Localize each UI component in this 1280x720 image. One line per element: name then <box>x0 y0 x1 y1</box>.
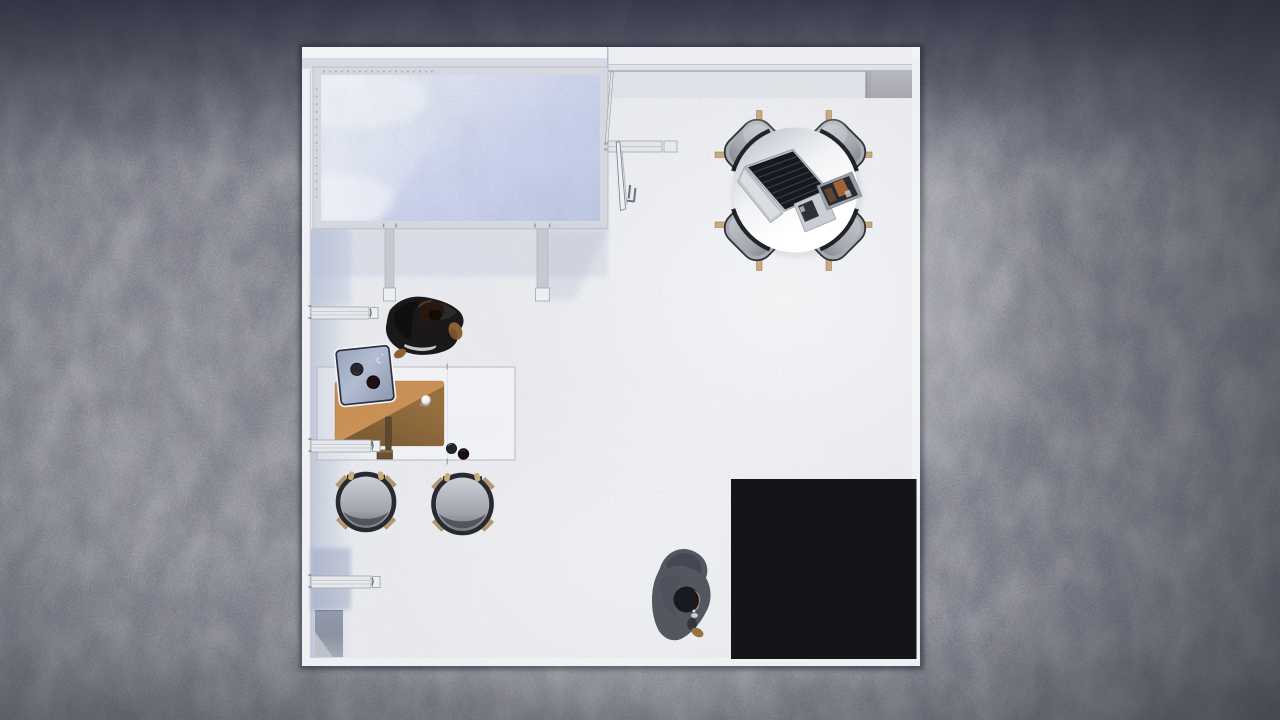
svg-text:OOOO: OOOO <box>449 426 491 442</box>
